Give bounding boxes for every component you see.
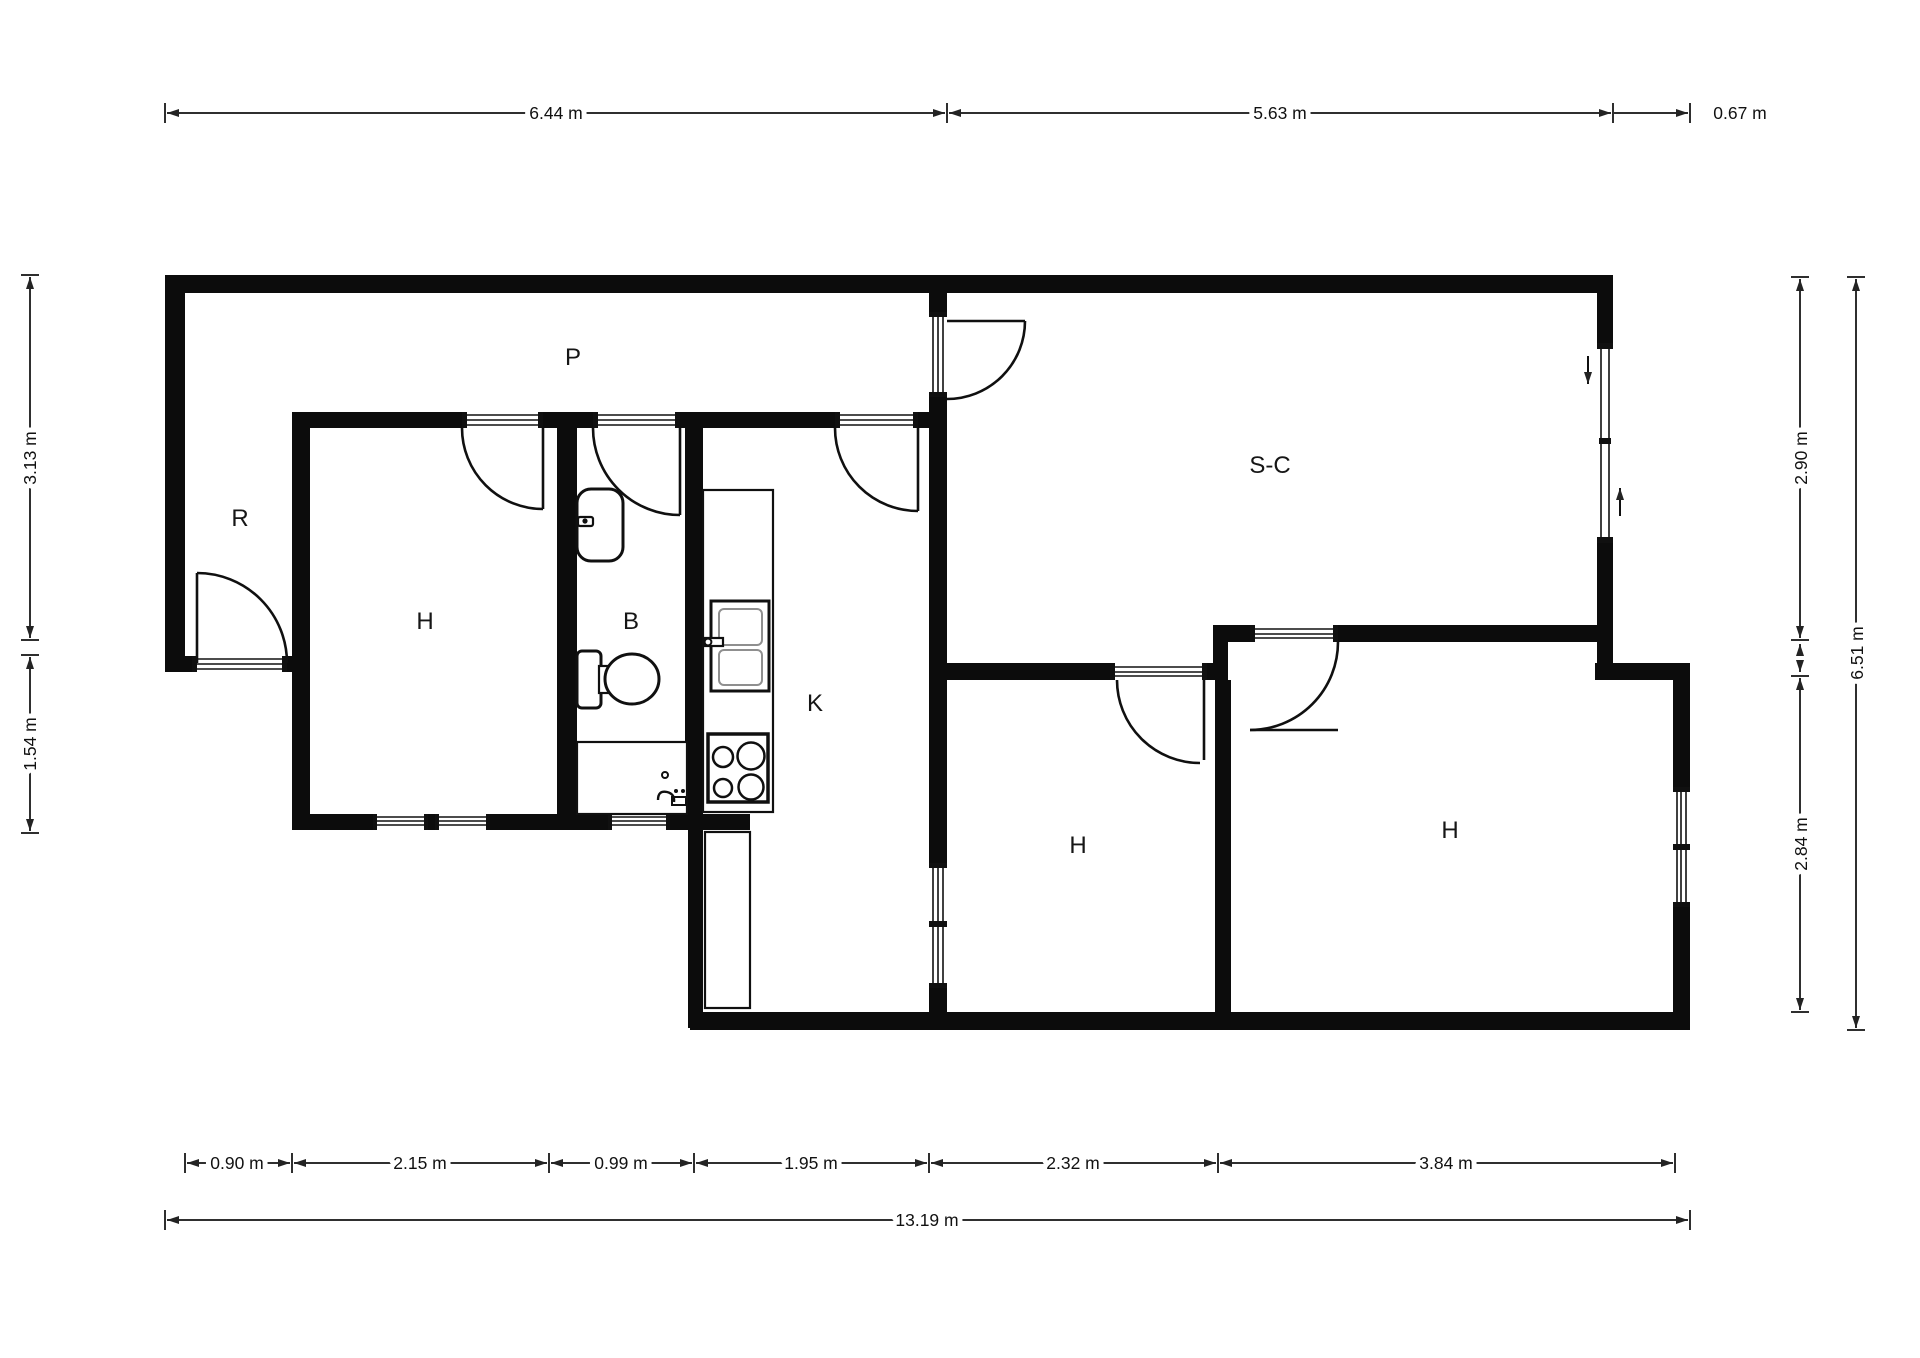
room-label-kitchen: K bbox=[807, 690, 823, 717]
entry-door-threshold bbox=[192, 656, 287, 672]
dim-right-2: 2.84 m bbox=[1791, 817, 1811, 871]
wall-facade-left-a bbox=[292, 814, 373, 830]
entry-door-swing bbox=[197, 573, 287, 663]
floor-plan-page: P R H B K S-C H H 6.44 m 5.63 m 0.67 m bbox=[0, 0, 1920, 1358]
wall-living-bottom-b bbox=[1338, 625, 1613, 642]
stove-icon bbox=[708, 734, 768, 802]
room-label-bedroom-middle: H bbox=[1069, 832, 1086, 859]
dim-top: 6.44 m 5.63 m 0.67 m bbox=[165, 103, 1767, 123]
wall-hall-b bbox=[543, 412, 593, 428]
living-door-swing bbox=[947, 321, 1025, 399]
dim-bottom-2: 2.15 m bbox=[393, 1153, 447, 1173]
kitchen-opening bbox=[929, 863, 947, 988]
window-bedroom-left-2 bbox=[435, 814, 490, 830]
wall-center-vertical-a bbox=[929, 293, 947, 312]
dim-bottom-total: 13.19 m bbox=[165, 1210, 1690, 1230]
room-label-entry: R bbox=[231, 505, 248, 532]
dim-bottom-1: 0.90 m bbox=[210, 1153, 264, 1173]
dim-right-1: 2.90 m bbox=[1791, 431, 1811, 485]
dim-left-1: 3.13 m bbox=[20, 431, 40, 485]
bedroom-left-door-swing bbox=[462, 428, 543, 509]
walls bbox=[165, 275, 1690, 1030]
dim-right-total: 6.51 m bbox=[1847, 626, 1867, 680]
kitchen-door-threshold bbox=[835, 412, 918, 428]
dim-right: 2.90 m 2.84 m bbox=[1791, 277, 1811, 1012]
wall-bedroom-middle-top-a bbox=[947, 663, 1110, 680]
bedroom-right-door-swing bbox=[1250, 642, 1338, 730]
wall-bottom bbox=[690, 1012, 1690, 1030]
wall-facade-left-b bbox=[428, 814, 435, 830]
wall-bedrooms-divider bbox=[1215, 680, 1231, 1012]
window-bedroom-left-1 bbox=[373, 814, 428, 830]
wall-bedroom-right-a bbox=[1673, 663, 1690, 787]
wall-facade-left-d bbox=[670, 814, 750, 830]
bedroom-middle-door-threshold bbox=[1110, 663, 1207, 680]
wall-hall-c bbox=[680, 412, 835, 428]
floor-plan-drawing: P R H B K S-C H H 6.44 m 5.63 m 0.67 m bbox=[0, 0, 1920, 1358]
kitchen-sink-icon bbox=[704, 601, 769, 691]
toilet-icon bbox=[577, 651, 659, 708]
bedroom-right-door-threshold bbox=[1250, 625, 1338, 642]
dim-left: 3.13 m 1.54 m bbox=[20, 275, 40, 833]
room-label-living-dining: S-C bbox=[1249, 452, 1290, 479]
window-bathroom bbox=[608, 814, 670, 830]
kitchen-door-swing bbox=[835, 428, 918, 511]
dim-bottom-3: 0.99 m bbox=[594, 1153, 648, 1173]
dim-top-1: 6.44 m bbox=[529, 103, 583, 123]
dim-top-3: 0.67 m bbox=[1713, 103, 1767, 123]
wall-living-right-b bbox=[1597, 543, 1613, 663]
room-label-bedroom-right: H bbox=[1441, 817, 1458, 844]
fixtures bbox=[577, 356, 1620, 1008]
wall-jog bbox=[1213, 625, 1228, 680]
wall-facade-left-c bbox=[490, 814, 608, 830]
shower-icon bbox=[577, 742, 687, 814]
window-living bbox=[1597, 343, 1613, 543]
room-label-bathroom: B bbox=[623, 608, 639, 635]
wall-entry-bottom-a bbox=[165, 656, 192, 672]
dim-bottom-4: 1.95 m bbox=[784, 1153, 838, 1173]
wall-entry-bedroom-divider bbox=[292, 412, 310, 830]
wall-bedroom-bath-divider bbox=[557, 428, 577, 830]
dim-bottom-segments: 0.90 m 2.15 m 0.99 m 1.95 m 2.32 m 3.84 … bbox=[185, 1153, 1675, 1173]
bedroom-middle-door-swing bbox=[1117, 680, 1204, 763]
wall-living-bottom-a bbox=[1228, 625, 1250, 642]
dim-top-2: 5.63 m bbox=[1253, 103, 1307, 123]
room-label-bedroom-left: H bbox=[416, 608, 433, 635]
wall-left bbox=[165, 275, 185, 672]
fridge-icon bbox=[705, 832, 750, 1008]
dim-bottom-6: 3.84 m bbox=[1419, 1153, 1473, 1173]
dim-left-2: 1.54 m bbox=[20, 717, 40, 771]
room-label-hallway: P bbox=[565, 344, 581, 371]
wall-kitchen-left bbox=[688, 830, 703, 1028]
wall-living-right-a bbox=[1597, 275, 1613, 343]
dim-right-total: 6.51 m bbox=[1847, 277, 1867, 1030]
washbasin-icon bbox=[577, 489, 623, 561]
dim-bottom-total: 13.19 m bbox=[895, 1210, 958, 1230]
bedroom-left-door-threshold bbox=[462, 412, 543, 428]
wall-center-vertical-b bbox=[929, 397, 947, 863]
wall-hall-a bbox=[310, 412, 462, 428]
window-bedroom-right bbox=[1673, 787, 1690, 907]
dim-bottom-5: 2.32 m bbox=[1046, 1153, 1100, 1173]
wall-top bbox=[165, 275, 1613, 293]
wall-bedroom-right-b bbox=[1673, 907, 1690, 1012]
living-door-threshold bbox=[929, 312, 947, 397]
wall-center-vertical-c bbox=[929, 988, 947, 1012]
bathroom-door-threshold bbox=[593, 412, 680, 428]
wall-hall-d bbox=[918, 412, 929, 428]
